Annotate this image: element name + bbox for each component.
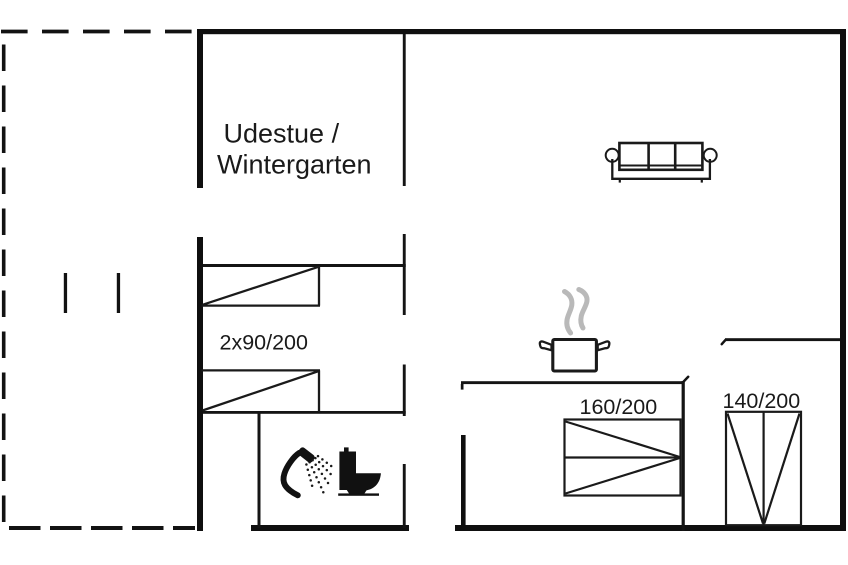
svg-text:160/200: 160/200 [580, 395, 658, 419]
svg-text:Udestue /: Udestue / [224, 119, 340, 149]
svg-text:Wintergarten: Wintergarten [217, 149, 372, 179]
svg-text:2x90/200: 2x90/200 [220, 331, 309, 355]
svg-text:140/200: 140/200 [723, 389, 801, 413]
